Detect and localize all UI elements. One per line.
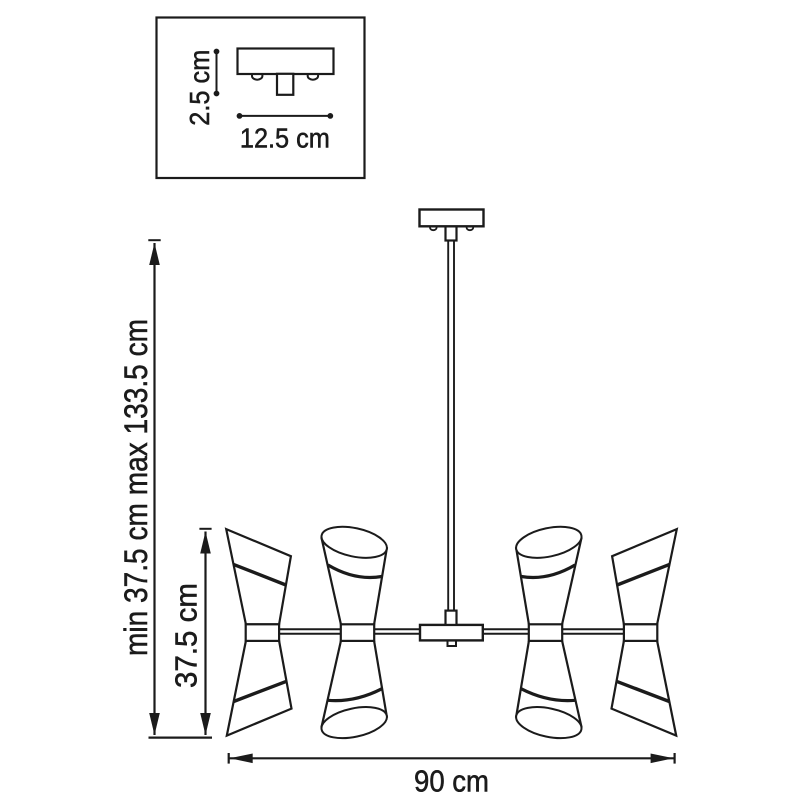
svg-text:37.5 cm: 37.5 cm [169, 583, 204, 688]
svg-text:min 37.5 cm max 133.5 cm: min 37.5 cm max 133.5 cm [118, 319, 154, 656]
svg-text:2.5 cm: 2.5 cm [184, 50, 215, 126]
svg-text:12.5 cm: 12.5 cm [240, 123, 330, 154]
svg-text:90 cm: 90 cm [414, 764, 489, 799]
